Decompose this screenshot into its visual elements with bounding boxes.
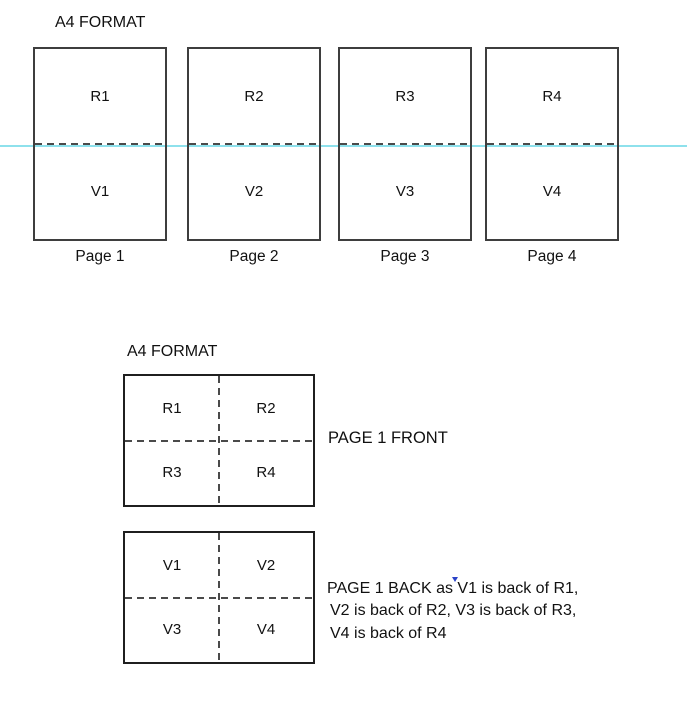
front-sheet-box: R1 R2 R3 R4 <box>123 374 315 507</box>
cut-line <box>35 143 165 145</box>
quadrant-cell: V2 <box>219 533 313 598</box>
quadrant-cell: R4 <box>219 441 313 506</box>
sheet-page-4: R4 V4 <box>485 47 619 241</box>
quadrant-cell: V1 <box>125 533 219 598</box>
imposition-diagram: A4 FORMAT R1 V1 R2 V2 R3 V3 R4 V4 Page 1… <box>0 0 687 723</box>
verso-label: V2 <box>189 144 319 239</box>
recto-label: R2 <box>189 49 319 144</box>
bottom-format-label: A4 FORMAT <box>127 343 217 361</box>
page-caption: Page 1 <box>33 248 167 266</box>
back-caption-line: V2 is back of R2, V3 is back of R3, <box>327 600 578 622</box>
back-caption: PAGE 1 BACK as V1 is back of R1, V2 is b… <box>327 578 578 645</box>
cut-line <box>487 143 617 145</box>
page-caption: Page 4 <box>485 248 619 266</box>
back-sheet-box: V1 V2 V3 V4 <box>123 531 315 664</box>
cut-line <box>189 143 319 145</box>
sheet-page-1: R1 V1 <box>33 47 167 241</box>
page-caption: Page 3 <box>338 248 472 266</box>
quadrant-cell: V4 <box>219 598 313 663</box>
recto-label: R3 <box>340 49 470 144</box>
front-caption: PAGE 1 FRONT <box>328 429 448 448</box>
recto-label: R1 <box>35 49 165 144</box>
page-caption: Page 2 <box>187 248 321 266</box>
quadrant-cell: R1 <box>125 376 219 441</box>
verso-label: V3 <box>340 144 470 239</box>
back-caption-line: V4 is back of R4 <box>327 623 578 645</box>
quadrant-cell: R3 <box>125 441 219 506</box>
sheet-page-3: R3 V3 <box>338 47 472 241</box>
verso-label: V4 <box>487 144 617 239</box>
sheet-page-2: R2 V2 <box>187 47 321 241</box>
cut-line <box>340 143 470 145</box>
verso-label: V1 <box>35 144 165 239</box>
text-cursor-artifact <box>452 577 458 582</box>
recto-label: R4 <box>487 49 617 144</box>
horizontal-fold-dash <box>125 440 313 442</box>
horizontal-fold-dash <box>125 597 313 599</box>
quadrant-cell: R2 <box>219 376 313 441</box>
quadrant-cell: V3 <box>125 598 219 663</box>
top-format-label: A4 FORMAT <box>55 14 145 32</box>
